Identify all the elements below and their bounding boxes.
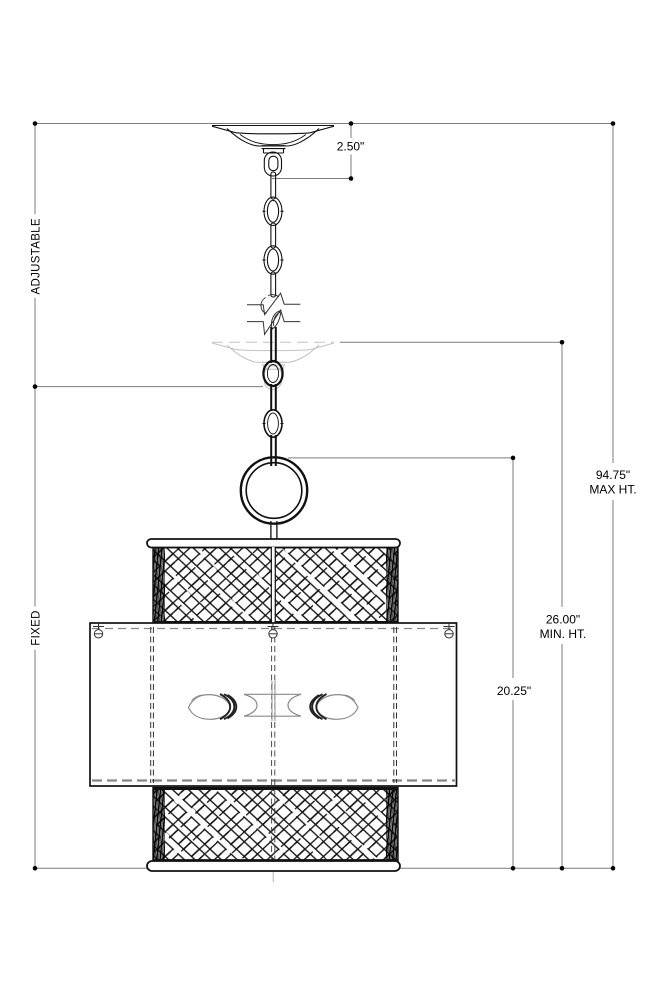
svg-text:20.25": 20.25" (497, 684, 531, 698)
svg-text:MIN. HT.: MIN. HT. (540, 627, 587, 641)
svg-text:94.75": 94.75" (596, 468, 630, 482)
svg-text:26.00": 26.00" (546, 613, 580, 627)
svg-text:MAX HT.: MAX HT. (589, 483, 636, 497)
svg-text:ADJUSTABLE: ADJUSTABLE (31, 218, 43, 294)
svg-text:2.50": 2.50" (337, 140, 365, 154)
svg-text:FIXED: FIXED (31, 610, 43, 645)
